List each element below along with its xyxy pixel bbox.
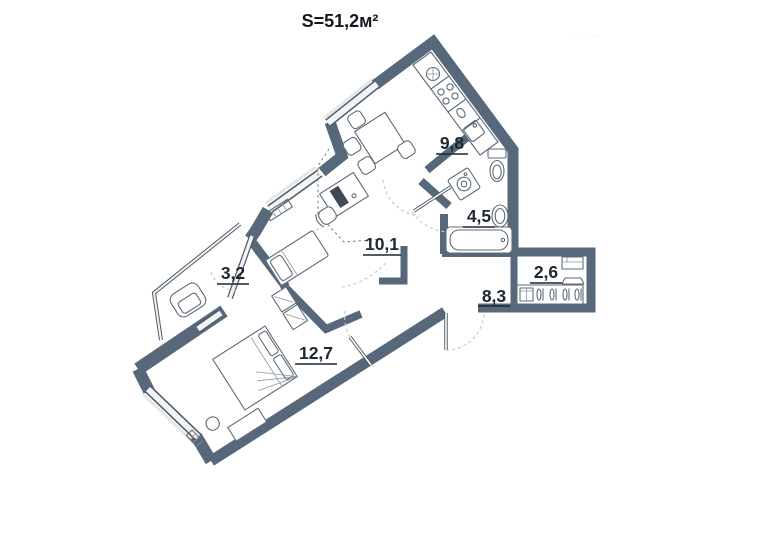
bathroom-area-label: 4,5 bbox=[463, 206, 495, 227]
floor-plan-page: S=51,2м² ·· ··· ·· ···· 9,8 4,5 10,1 3,2… bbox=[0, 0, 768, 543]
svg-text:9,8: 9,8 bbox=[440, 133, 465, 153]
wardrobe-hangers-icon bbox=[517, 285, 583, 304]
watermark: ·· ··· ·· ···· bbox=[569, 33, 601, 38]
plan-area-title: S=51,2м² bbox=[302, 11, 379, 31]
exterior-wall-corner bbox=[138, 369, 149, 391]
wardrobe-shelf-icon bbox=[562, 257, 583, 269]
hanger-icon bbox=[563, 289, 569, 301]
clothes-rail-icon bbox=[562, 278, 584, 284]
bathtub-icon bbox=[446, 227, 512, 253]
hanger-icon bbox=[575, 289, 581, 301]
floor-plan-canvas: S=51,2м² ·· ··· ·· ···· 9,8 4,5 10,1 3,2… bbox=[0, 0, 768, 543]
svg-text:2,6: 2,6 bbox=[534, 262, 559, 282]
balcony-area-label: 3,2 bbox=[217, 263, 249, 284]
hallway-area-label: 8,3 bbox=[478, 286, 510, 306]
living-window bbox=[270, 173, 320, 209]
armchair-icon bbox=[168, 280, 209, 319]
double-bed-icon bbox=[213, 326, 298, 410]
washing-machine-icon bbox=[447, 167, 480, 200]
svg-text:12,7: 12,7 bbox=[299, 343, 333, 363]
svg-text:3,2: 3,2 bbox=[221, 263, 246, 283]
exterior-wall-jog bbox=[322, 122, 342, 172]
exterior-wall-west-pier bbox=[250, 210, 268, 239]
svg-text:4,5: 4,5 bbox=[467, 206, 492, 226]
hanger-icon bbox=[550, 289, 556, 301]
toilet-icon bbox=[488, 149, 506, 182]
svg-text:8,3: 8,3 bbox=[482, 286, 507, 306]
bedroom-window bbox=[148, 389, 198, 437]
wardrobe-area-label: 2,6 bbox=[530, 262, 562, 283]
svg-text:10,1: 10,1 bbox=[365, 234, 399, 254]
bedroom-area-label: 12,7 bbox=[295, 343, 337, 364]
window-trim bbox=[143, 394, 193, 442]
hanger-icon bbox=[537, 289, 543, 301]
stool-icon bbox=[204, 415, 222, 433]
kitchen-area-label: 9,8 bbox=[436, 133, 468, 154]
entrance-door-arc bbox=[446, 312, 484, 350]
room-area-label: 10,1 bbox=[363, 234, 401, 255]
